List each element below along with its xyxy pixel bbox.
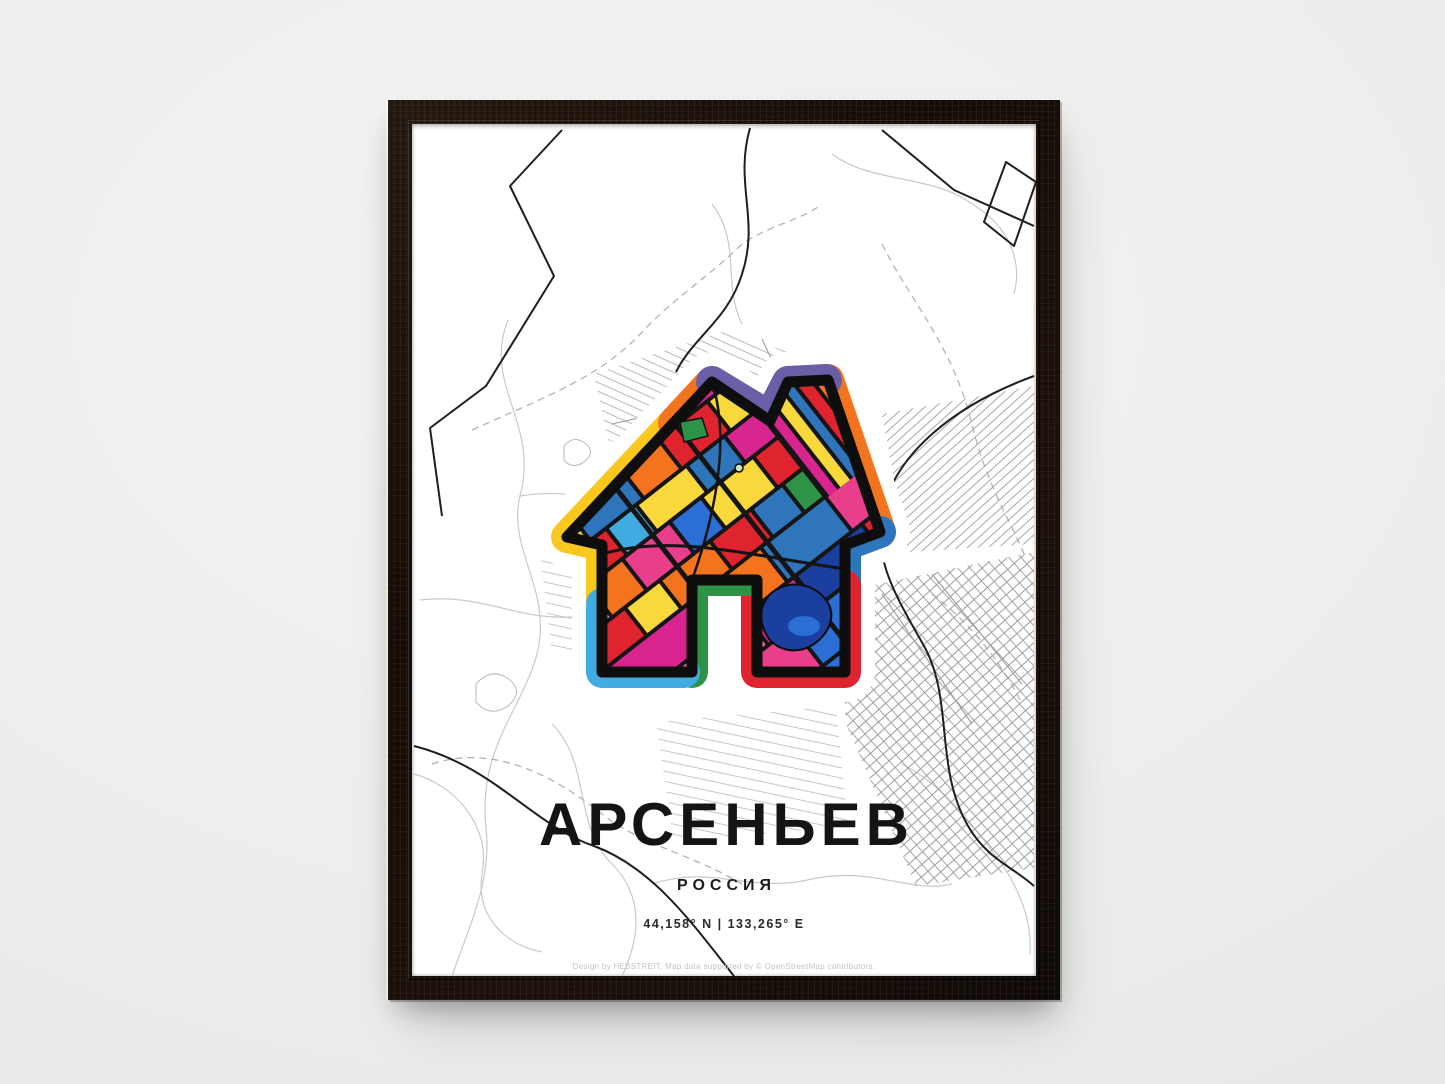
wall: АРСЕНЬЕВ РОССИЯ 44,158° N | 133,265° E D… — [0, 0, 1445, 1084]
city-map-artwork — [412, 124, 1036, 976]
poster-paper: АРСЕНЬЕВ РОССИЯ 44,158° N | 133,265° E D… — [412, 124, 1036, 976]
poster-frame: АРСЕНЬЕВ РОССИЯ 44,158° N | 133,265° E D… — [388, 100, 1060, 1000]
center-marker — [735, 464, 743, 472]
